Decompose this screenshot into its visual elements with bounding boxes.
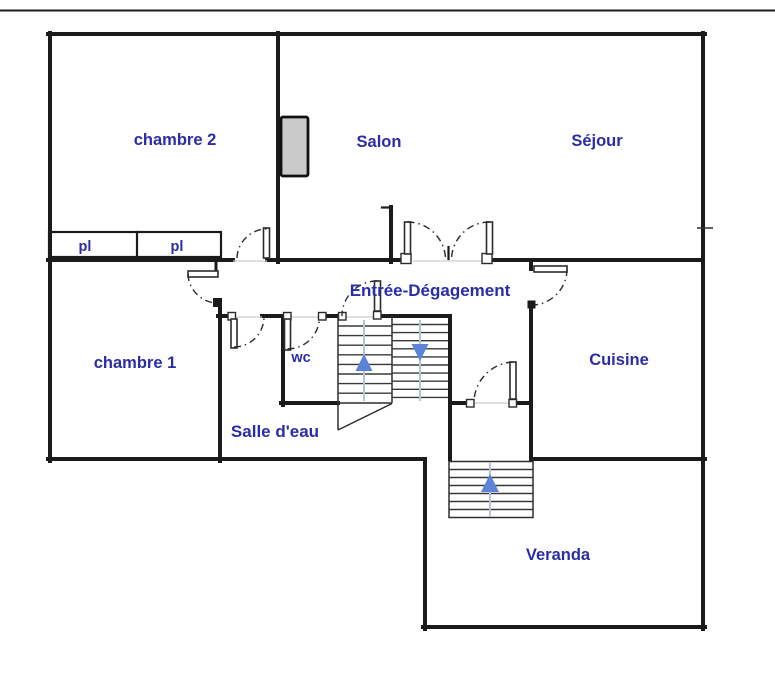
door-leaf-left xyxy=(405,222,411,254)
door-swing-arc xyxy=(237,229,267,258)
room-label-veranda: Veranda xyxy=(526,546,591,564)
door-leaf xyxy=(510,362,516,399)
door-veranda-access xyxy=(467,362,517,407)
hinge-plate xyxy=(374,312,382,320)
room-label-cuisine: Cuisine xyxy=(589,351,649,369)
door-leaf xyxy=(231,319,237,348)
double-door-salon xyxy=(401,222,493,264)
door-leaf-right xyxy=(487,222,493,254)
closet-box xyxy=(49,232,221,257)
floorplan-svg: chambre 2 Salon Séjour pl pl Entrée-Déga… xyxy=(0,0,775,673)
room-label-wc: wc xyxy=(290,350,310,366)
room-label-salon: Salon xyxy=(357,133,402,151)
stair-down-arrow xyxy=(412,344,429,361)
room-label-sejour: Séjour xyxy=(571,132,623,150)
door-chambre1 xyxy=(188,271,222,307)
door-leaf xyxy=(264,228,270,258)
veranda-steps xyxy=(449,462,533,518)
chimney xyxy=(281,117,308,176)
room-label-chambre-1: chambre 1 xyxy=(94,354,177,372)
main-staircase xyxy=(338,316,448,430)
room-label-chambre-2: chambre 2 xyxy=(134,131,217,149)
door-wc xyxy=(284,313,327,351)
door-leaf xyxy=(534,266,567,272)
door-swing-arc xyxy=(533,269,567,305)
understair-break-line xyxy=(338,404,392,431)
door-jamb-block xyxy=(528,301,535,308)
veranda-up-arrow xyxy=(481,474,499,492)
room-label-pl-1: pl xyxy=(79,239,92,255)
door-swing-arc xyxy=(188,274,217,303)
floorplan-page: chambre 2 Salon Séjour pl pl Entrée-Déga… xyxy=(0,0,775,673)
door-chambre2 xyxy=(237,228,270,258)
door-cuisine xyxy=(528,266,567,308)
door-leaf xyxy=(285,319,291,350)
hinge-plate-left xyxy=(401,254,411,264)
room-label-pl-2: pl xyxy=(171,239,184,255)
closets-pl xyxy=(49,232,221,257)
door-swing-arc xyxy=(288,317,320,349)
door-swing-arc-left xyxy=(408,222,446,259)
door-leaf xyxy=(188,271,218,277)
door-salle-deau xyxy=(228,313,264,349)
hinge-plate xyxy=(509,400,517,408)
door-swing-arc xyxy=(234,317,264,347)
room-label-salle-deau: Salle d'eau xyxy=(231,422,319,441)
jamb-plate xyxy=(467,400,475,408)
stair-up-arrow xyxy=(356,354,373,371)
jamb-plate xyxy=(319,313,327,321)
door-jamb-block xyxy=(214,299,222,307)
door-swing-arc xyxy=(474,362,513,401)
room-label-entree-degagement: Entrée-Dégagement xyxy=(350,281,511,300)
inner-walls xyxy=(48,33,703,461)
hinge-plate-right xyxy=(482,254,492,264)
outer-walls xyxy=(48,33,713,629)
